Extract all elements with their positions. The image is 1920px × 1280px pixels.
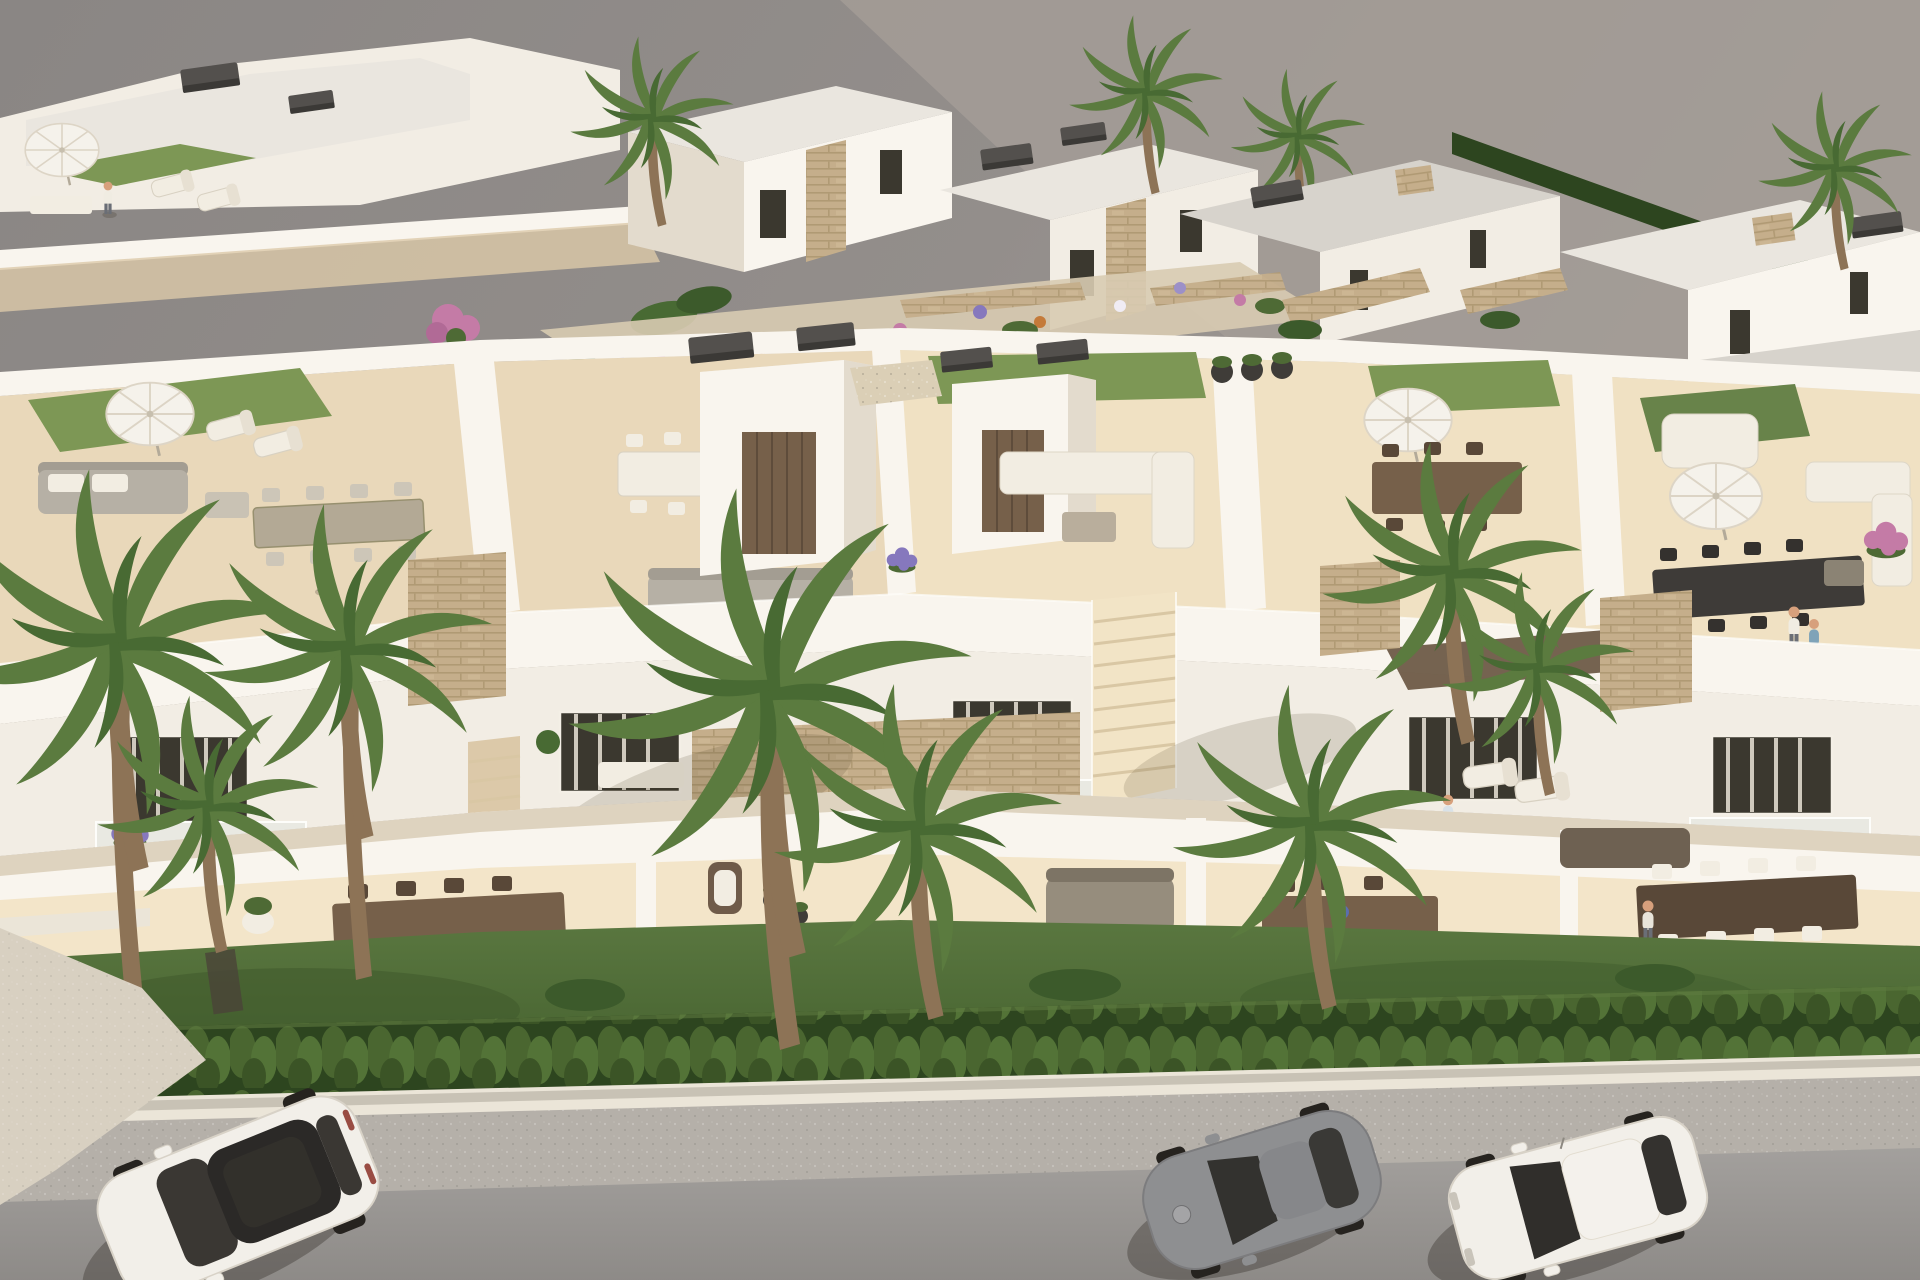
villa4-window: [1850, 272, 1868, 314]
villa1-stone-pillar: [806, 140, 846, 262]
daybed-back: [1046, 868, 1174, 882]
stone-chimney: [1395, 165, 1434, 196]
shrub: [545, 979, 625, 1011]
dining-chair: [306, 486, 324, 500]
dining-chair: [266, 552, 284, 566]
dining-chair: [492, 876, 512, 891]
dining-chair: [354, 548, 372, 562]
villa4-window: [1730, 310, 1750, 354]
dining-chair-dark: [1786, 539, 1803, 552]
dining-chair-white: [1796, 856, 1816, 871]
dining-chair: [1386, 518, 1403, 531]
dining-chair: [394, 482, 412, 496]
dining-chair-dark: [1744, 542, 1761, 555]
coffee-table: [1062, 512, 1116, 542]
dining-chair: [444, 878, 464, 893]
balcony-plant: [536, 730, 560, 754]
sofa-cushion: [48, 474, 84, 492]
shrub: [1029, 969, 1121, 1001]
villa1-window: [880, 150, 902, 194]
side-table: [1824, 560, 1864, 586]
stone-panel-mid-right: [1320, 560, 1400, 656]
daybed-white: [1662, 414, 1758, 468]
dining-chair: [630, 500, 647, 513]
dining-table-gray: [253, 499, 425, 548]
dining-chair-white: [1754, 928, 1774, 943]
dining-chair: [1364, 876, 1383, 890]
dining-chair: [664, 432, 681, 445]
shrub: [1615, 964, 1695, 992]
aerial-render: [0, 0, 1920, 1280]
stairbox-wood-door: [742, 432, 816, 554]
cypress-shrub: [1480, 311, 1520, 329]
dining-chair: [626, 434, 643, 447]
hanging-chair-cushion: [714, 870, 736, 906]
dining-chair-white: [1802, 926, 1822, 941]
dining-chair-white: [1700, 861, 1720, 876]
cypress-shrub: [1278, 320, 1322, 340]
dining-chair-white: [1652, 864, 1672, 879]
dining-chair-dark: [1708, 619, 1725, 632]
dining-chair-white: [1748, 858, 1768, 873]
stone-chimney: [1752, 212, 1796, 245]
dining-chair: [1466, 442, 1483, 455]
column: [1186, 818, 1206, 934]
terrace-table: [30, 196, 92, 214]
dining-chair: [396, 881, 416, 896]
sofa-cushion: [92, 474, 128, 492]
villa3-window: [1470, 230, 1486, 268]
dining-chair-dark: [1750, 616, 1767, 629]
dining-chair-dark: [1702, 545, 1719, 558]
dining-chair: [1382, 444, 1399, 457]
dining-chair-dark: [1660, 548, 1677, 561]
sofa-white-l2: [1152, 452, 1194, 548]
dining-chair: [668, 502, 685, 515]
dining-chair: [262, 488, 280, 502]
dining-chair: [350, 484, 368, 498]
dining-table-dark-wood: [1636, 874, 1859, 939]
render-canvas: [0, 0, 1920, 1280]
outdoor-sofa-dark: [1560, 828, 1690, 868]
villa1-window: [760, 190, 786, 238]
